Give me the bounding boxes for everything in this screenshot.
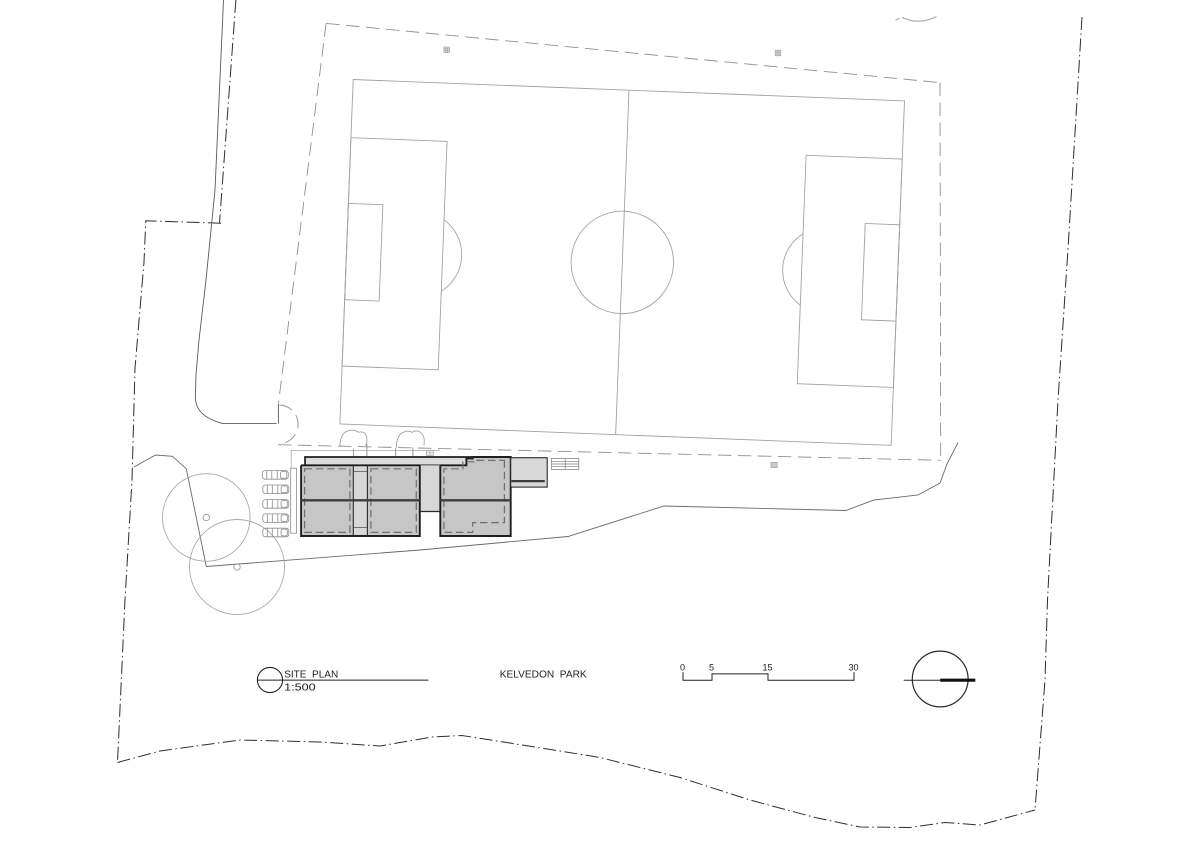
svg-text:1:500: 1:500 [284,683,316,694]
svg-text:15: 15 [763,662,773,672]
svg-text:0: 0 [680,662,685,672]
svg-text:5: 5 [709,662,714,672]
svg-text:KELVEDON PARK: KELVEDON PARK [500,669,587,680]
svg-text:30: 30 [849,662,859,672]
svg-text:SITE PLAN: SITE PLAN [284,669,338,680]
